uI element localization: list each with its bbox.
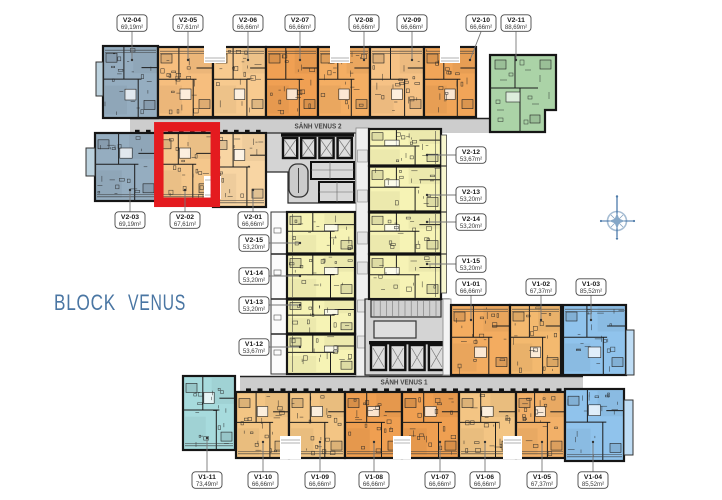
- svg-text:67,61m²: 67,61m²: [177, 24, 199, 31]
- svg-text:V2-09: V2-09: [403, 17, 421, 24]
- svg-text:53,20m²: 53,20m²: [460, 196, 482, 203]
- svg-text:66,66m²: 66,66m²: [309, 481, 331, 488]
- svg-text:V2-07: V2-07: [291, 17, 309, 24]
- svg-text:V2-06: V2-06: [239, 17, 257, 24]
- svg-text:66,66m²: 66,66m²: [289, 24, 311, 31]
- svg-text:V1-12: V1-12: [245, 341, 263, 348]
- svg-text:V1-15: V1-15: [462, 258, 480, 265]
- svg-text:V2-02: V2-02: [176, 214, 194, 221]
- svg-text:66,66m²: 66,66m²: [401, 24, 423, 31]
- svg-text:V1-14: V1-14: [245, 270, 263, 277]
- svg-text:67,37m²: 67,37m²: [531, 481, 553, 488]
- svg-text:V1-11: V1-11: [198, 474, 216, 481]
- svg-text:V1-01: V1-01: [462, 281, 480, 288]
- svg-text:66,66m²: 66,66m²: [470, 24, 492, 31]
- svg-text:V1-10: V1-10: [254, 474, 272, 481]
- svg-text:V2-04: V2-04: [123, 17, 141, 24]
- svg-text:88,69m²: 88,69m²: [505, 24, 527, 31]
- svg-text:66,66m²: 66,66m²: [353, 24, 375, 31]
- svg-text:V2-01: V2-01: [244, 214, 262, 221]
- svg-text:V1-02: V1-02: [532, 281, 550, 288]
- svg-text:67,37m²: 67,37m²: [530, 288, 552, 295]
- svg-text:V2-03: V2-03: [121, 214, 139, 221]
- svg-text:53,67m²: 53,67m²: [243, 348, 265, 355]
- svg-text:V2-05: V2-05: [179, 17, 197, 24]
- svg-text:V2-08: V2-08: [355, 17, 373, 24]
- svg-text:69,19m²: 69,19m²: [119, 221, 141, 228]
- svg-text:V2-12: V2-12: [462, 149, 480, 156]
- svg-text:V2-15: V2-15: [245, 237, 263, 244]
- svg-text:V1-06: V1-06: [476, 474, 494, 481]
- svg-text:66,66m²: 66,66m²: [242, 221, 264, 228]
- svg-text:SẢNH VENUS 1: SẢNH VENUS 1: [381, 378, 428, 387]
- svg-text:V2-11: V2-11: [507, 17, 525, 24]
- svg-text:66,66m²: 66,66m²: [363, 481, 385, 488]
- svg-text:V2-13: V2-13: [462, 189, 480, 196]
- svg-text:BLOCK: BLOCK: [54, 290, 116, 315]
- svg-text:53,20m²: 53,20m²: [460, 223, 482, 230]
- svg-text:V1-08: V1-08: [365, 474, 383, 481]
- svg-text:V1-05: V1-05: [533, 474, 551, 481]
- svg-text:V1-13: V1-13: [245, 299, 263, 306]
- svg-text:66,66m²: 66,66m²: [474, 481, 496, 488]
- svg-text:V1-03: V1-03: [582, 281, 600, 288]
- svg-text:67,61m²: 67,61m²: [174, 221, 196, 228]
- svg-text:66,66m²: 66,66m²: [460, 288, 482, 295]
- svg-text:85,52m²: 85,52m²: [582, 481, 604, 488]
- svg-text:53,20m²: 53,20m²: [243, 244, 265, 251]
- svg-text:85,52m²: 85,52m²: [580, 288, 602, 295]
- svg-text:69,19m²: 69,19m²: [121, 24, 143, 31]
- svg-text:V1-04: V1-04: [584, 474, 602, 481]
- svg-text:66,66m²: 66,66m²: [429, 481, 451, 488]
- svg-text:V1-09: V1-09: [311, 474, 329, 481]
- svg-text:66,66m²: 66,66m²: [237, 24, 259, 31]
- svg-text:66,66m²: 66,66m²: [252, 481, 274, 488]
- svg-text:SẢNH VENUS 2: SẢNH VENUS 2: [295, 122, 342, 131]
- svg-text:V1-07: V1-07: [431, 474, 449, 481]
- svg-text:53,20m²: 53,20m²: [243, 277, 265, 284]
- svg-text:53,67m²: 53,67m²: [460, 156, 482, 163]
- svg-text:V2-10: V2-10: [472, 17, 490, 24]
- svg-text:73,49m²: 73,49m²: [196, 481, 218, 488]
- svg-text:53,20m²: 53,20m²: [460, 265, 482, 272]
- svg-text:53,20m²: 53,20m²: [243, 306, 265, 313]
- svg-text:V2-14: V2-14: [462, 216, 480, 223]
- svg-text:VENUS: VENUS: [128, 290, 186, 315]
